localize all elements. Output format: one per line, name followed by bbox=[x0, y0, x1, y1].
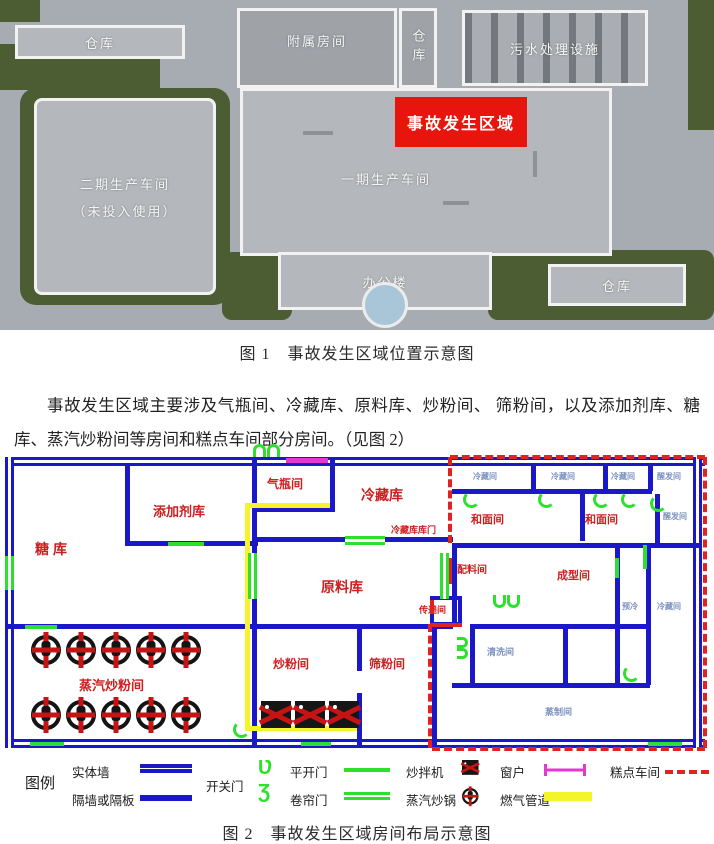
legend-label-casement-door: 平开门 bbox=[290, 762, 328, 781]
room-label-cold-2: 冷藏间 bbox=[551, 471, 575, 482]
door-double-swing bbox=[493, 595, 520, 608]
room-label-batching: 配料间 bbox=[457, 561, 487, 576]
wall-segment bbox=[452, 683, 650, 688]
building-label: 污水处理设施 bbox=[510, 39, 600, 58]
transfer-room-red-mark bbox=[430, 600, 434, 614]
room-label-dough-1: 和面间 bbox=[471, 511, 504, 527]
pastry-boundary-dash bbox=[428, 624, 432, 748]
room-label-fry: 炒粉间 bbox=[273, 655, 309, 672]
legend-title: 图例 bbox=[25, 772, 55, 793]
building-label: 仓库 bbox=[409, 29, 428, 67]
yard-marking bbox=[443, 201, 469, 205]
wall-segment bbox=[125, 464, 130, 544]
wall-segment bbox=[470, 624, 650, 629]
wall-segment bbox=[648, 464, 653, 491]
pastry-boundary-dash bbox=[432, 747, 705, 751]
mixer-icon bbox=[261, 701, 291, 728]
wall-segment bbox=[357, 629, 362, 671]
wok-icon bbox=[171, 700, 201, 730]
building-label: 仓库 bbox=[85, 33, 115, 52]
outer-wall bbox=[5, 457, 14, 748]
room-label-cold-storage-door: 冷藏库库门 bbox=[391, 523, 436, 536]
room-label-cold-3: 冷藏间 bbox=[611, 471, 635, 482]
door-casement bbox=[615, 558, 619, 578]
legend-label-gas-pipe: 燃气管道 bbox=[500, 790, 550, 809]
wall-segment bbox=[603, 464, 608, 491]
pastry-boundary-dash bbox=[703, 457, 707, 748]
wok-icon bbox=[136, 700, 166, 730]
rolling-door-symbol bbox=[344, 792, 390, 800]
swing-door-symbol: Ʋ bbox=[258, 758, 272, 778]
legend-label-solid-wall: 实体墙 bbox=[72, 762, 110, 781]
room-label-gas-cylinder: 气瓶间 bbox=[267, 475, 303, 492]
door-swing-arc bbox=[593, 491, 610, 508]
transfer-room-box bbox=[430, 596, 462, 626]
mixer-icon bbox=[329, 701, 359, 728]
door-swing-arc bbox=[463, 491, 480, 508]
door-rolling bbox=[440, 553, 449, 599]
wall-segment bbox=[330, 457, 335, 512]
building-label: 附属房间 bbox=[287, 31, 347, 50]
building-label-line2: （未投入使用） bbox=[72, 201, 177, 220]
swing-door-symbol: Ʒ bbox=[258, 782, 270, 802]
room-label-cold-storage: 冷藏库 bbox=[361, 485, 403, 505]
room-label-precooling: 预冷 bbox=[622, 601, 638, 612]
door-casement bbox=[25, 625, 57, 629]
wok-icon bbox=[101, 635, 131, 665]
building-label: 一期生产车间 bbox=[341, 169, 431, 188]
door-swing-arc bbox=[623, 665, 640, 682]
report-page: { "figure1": { "caption": "图 1 事故发生区域位置示… bbox=[0, 0, 714, 843]
room-label-cold-1: 冷藏间 bbox=[473, 471, 497, 482]
yard-marking bbox=[533, 151, 537, 177]
building-sewage-treatment: 污水处理设施 bbox=[462, 10, 648, 86]
wok-icon bbox=[31, 635, 61, 665]
legend-label-pastry-workshop: 糕点车间 bbox=[610, 762, 660, 781]
wok-icon bbox=[171, 635, 201, 665]
door-rolling bbox=[248, 553, 257, 599]
room-label-steam-fry: 蒸汽炒粉间 bbox=[79, 675, 144, 694]
room-label-forming: 成型间 bbox=[557, 567, 590, 583]
wok-icon bbox=[101, 700, 131, 730]
pastry-boundary-symbol bbox=[665, 770, 709, 774]
wok-icon bbox=[462, 788, 479, 805]
figure1-caption: 图 1 事故发生区域位置示意图 bbox=[0, 340, 714, 364]
door-swing-arc bbox=[650, 495, 667, 512]
accident-area-box: 事故发生区域 bbox=[395, 97, 527, 147]
room-label-sieve: 筛粉间 bbox=[369, 655, 405, 672]
wall-segment bbox=[580, 494, 585, 541]
transfer-room-red-mark bbox=[430, 623, 462, 627]
building-annex-rooms: 附属房间 bbox=[237, 8, 397, 88]
door-swing-arc bbox=[621, 491, 638, 508]
legend-label-window: 窗户 bbox=[500, 762, 525, 781]
window-mark bbox=[286, 458, 328, 463]
legend-label-rolling-door: 卷帘门 bbox=[290, 790, 328, 809]
door-casement bbox=[30, 742, 64, 746]
outer-wall bbox=[693, 457, 702, 748]
legend: 图例 实体墙 隔墙或隔板 开关门 Ʋ Ʒ 平开门 卷帘门 炒拌机 蒸汽炒锅 窗户… bbox=[10, 758, 710, 820]
room-label-cold-4: 冷藏间 bbox=[657, 601, 681, 612]
door-rolling bbox=[345, 536, 385, 545]
door-swing-arc bbox=[233, 721, 250, 738]
gas-pipe bbox=[245, 505, 250, 731]
building-label-line1: 二期生产车间 bbox=[80, 174, 170, 193]
figure2-caption: 图 2 事故发生区域房间布局示意图 bbox=[0, 820, 714, 844]
wall-segment bbox=[470, 629, 475, 687]
grass-patch bbox=[688, 0, 714, 130]
body-paragraph: 事故发生区域主要涉及气瓶间、冷藏库、原料库、炒粉间、 筛粉间，以及添加剂库、糖库… bbox=[14, 389, 700, 458]
room-label-cleaning: 清洗间 bbox=[487, 645, 514, 658]
wall-segment bbox=[563, 629, 568, 687]
casement-door-symbol bbox=[344, 768, 390, 772]
door-casement bbox=[643, 545, 647, 569]
window-symbol bbox=[544, 764, 586, 776]
room-label-proofing-1: 醒发间 bbox=[657, 471, 681, 482]
room-label-raw-material: 原料库 bbox=[321, 577, 363, 597]
gas-pipe bbox=[245, 503, 330, 508]
grass-patch bbox=[0, 0, 40, 22]
wok-icon bbox=[66, 635, 96, 665]
accident-area-label: 事故发生区域 bbox=[407, 110, 515, 134]
door-casement bbox=[648, 742, 682, 746]
door-double-swing bbox=[457, 637, 468, 659]
gas-pipe-symbol bbox=[544, 792, 592, 801]
figure2-floor-plan: 糖库 添加剂库 气瓶间 冷藏库 冷藏库库门 原料库 和面间 和面间 配料间 成型… bbox=[5, 455, 709, 755]
wall-segment bbox=[531, 464, 536, 491]
wall-segment bbox=[252, 457, 257, 747]
partition-symbol bbox=[140, 795, 192, 801]
wall-segment bbox=[452, 543, 699, 548]
wall-segment bbox=[5, 624, 453, 629]
room-label-proofing-2: 醒发间 bbox=[663, 511, 687, 522]
room-label-dough-2: 和面间 bbox=[585, 511, 618, 527]
building-label: 仓库 bbox=[602, 276, 632, 295]
door-rolling bbox=[5, 556, 14, 590]
door-casement bbox=[168, 542, 204, 546]
yard-marking bbox=[303, 131, 333, 135]
legend-label-swing-door: 开关门 bbox=[206, 776, 244, 795]
figure1-aerial-view: 仓库 附属房间 仓库 污水处理设施 二期生产车间 （未投入使用） 一期生产车间 … bbox=[0, 0, 714, 330]
wok-icon bbox=[66, 700, 96, 730]
door-double-swing bbox=[253, 444, 280, 457]
building-phase2-workshop: 二期生产车间 （未投入使用） bbox=[34, 98, 216, 295]
pastry-boundary-dash bbox=[450, 455, 705, 459]
mixer-icon bbox=[295, 701, 325, 728]
building-warehouse-top-left: 仓库 bbox=[15, 25, 185, 59]
building-warehouse-bottom-right: 仓库 bbox=[548, 264, 686, 306]
wok-icon bbox=[136, 635, 166, 665]
legend-label-mixer: 炒拌机 bbox=[406, 762, 444, 781]
door-casement bbox=[301, 742, 331, 746]
mixer-icon bbox=[462, 760, 479, 775]
fountain bbox=[362, 282, 408, 328]
wok-icon bbox=[31, 700, 61, 730]
solid-wall-symbol bbox=[140, 764, 192, 773]
legend-label-steam-wok: 蒸汽炒锅 bbox=[406, 790, 456, 809]
wall-segment bbox=[432, 624, 437, 748]
building-warehouse-top-small: 仓库 bbox=[399, 8, 437, 88]
pastry-boundary-dash bbox=[448, 457, 452, 543]
room-label-additive-store: 添加剂库 bbox=[153, 501, 205, 520]
legend-label-partition: 隔墙或隔板 bbox=[72, 790, 135, 809]
door-swing-arc bbox=[538, 491, 555, 508]
room-label-sugar-store: 糖库 bbox=[35, 539, 71, 559]
room-label-steaming: 蒸制间 bbox=[545, 705, 572, 718]
